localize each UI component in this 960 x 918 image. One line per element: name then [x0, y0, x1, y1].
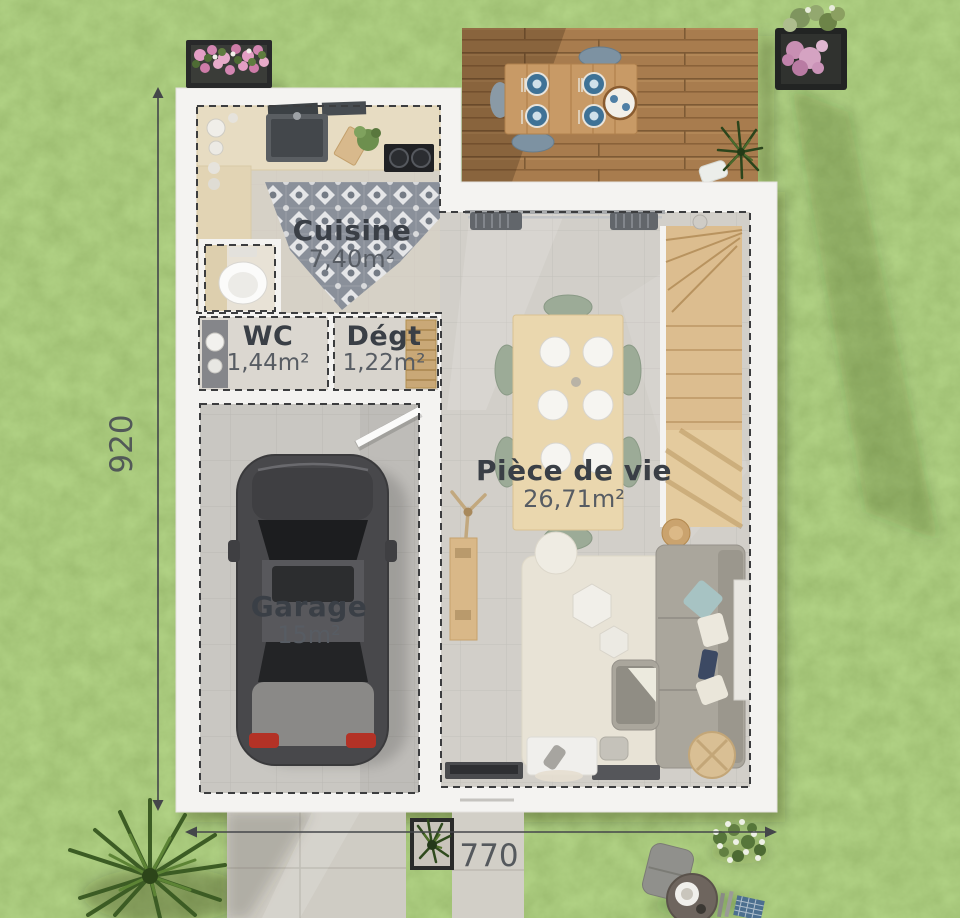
car-rear-window [258, 642, 368, 682]
car-hood [252, 468, 373, 520]
car [228, 455, 397, 765]
media-bench [592, 765, 660, 780]
house [176, 88, 777, 812]
wc-vanity [202, 320, 228, 388]
toilet-room [199, 239, 281, 316]
entry-walkway [452, 812, 524, 918]
degagement-room [334, 317, 438, 390]
wc-basin [206, 333, 224, 351]
patterned-pouf [600, 737, 628, 760]
floor-plan-svg [0, 0, 960, 918]
driveway [227, 812, 524, 918]
curtain [610, 212, 658, 230]
car-windshield [258, 520, 368, 562]
kitchen-window-blind [322, 101, 366, 116]
flower-planter-top-left [186, 40, 272, 88]
car-taillight [346, 733, 376, 748]
staircase [660, 215, 742, 540]
car-taillight [249, 733, 279, 748]
curtain [470, 212, 522, 230]
terrace-deck [462, 28, 758, 184]
wall-console [734, 580, 750, 700]
pouf [535, 532, 577, 574]
deck-tray [604, 87, 636, 119]
floor-plan-scene: Cuisine 7,40m² WC 1,44m² Dégt 1,22m² Piè… [0, 0, 960, 918]
planter-box-driveway [410, 818, 454, 870]
dining-set [495, 295, 641, 550]
garage-room [200, 404, 420, 793]
wc-room [199, 317, 328, 390]
deck-chair [512, 132, 554, 152]
